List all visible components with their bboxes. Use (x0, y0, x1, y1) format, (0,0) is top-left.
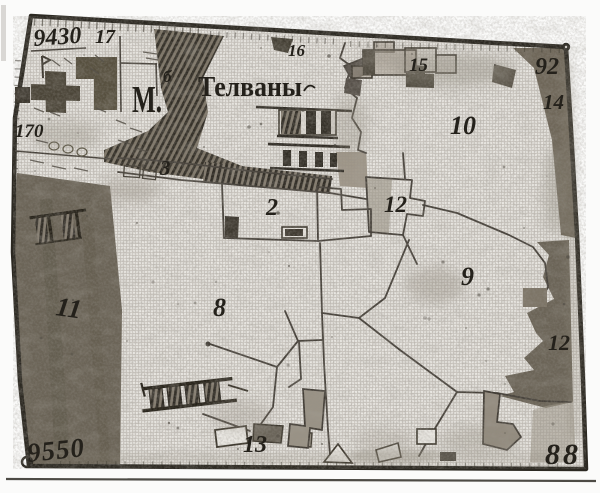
svg-text:88: 88 (545, 438, 581, 471)
svg-text:10: 10 (450, 111, 476, 140)
svg-text:14: 14 (543, 90, 564, 114)
svg-text:8: 8 (213, 293, 226, 322)
svg-text:Телваны: Телваны (198, 71, 302, 103)
svg-text:9430: 9430 (33, 23, 83, 52)
svg-text:16: 16 (288, 41, 306, 60)
svg-text:9550: 9550 (25, 432, 86, 468)
svg-text:12: 12 (384, 192, 407, 217)
svg-text:12: 12 (548, 330, 570, 355)
svg-text:92: 92 (535, 54, 559, 80)
svg-text:М.: М. (132, 79, 162, 121)
svg-text:3: 3 (159, 156, 171, 180)
svg-text:2: 2 (265, 195, 278, 221)
svg-text:9: 9 (461, 262, 474, 291)
svg-text:17: 17 (95, 26, 116, 48)
svg-text:170: 170 (15, 121, 44, 142)
svg-text:11: 11 (54, 291, 83, 324)
svg-text:15: 15 (409, 55, 429, 76)
svg-text:13: 13 (243, 432, 267, 458)
